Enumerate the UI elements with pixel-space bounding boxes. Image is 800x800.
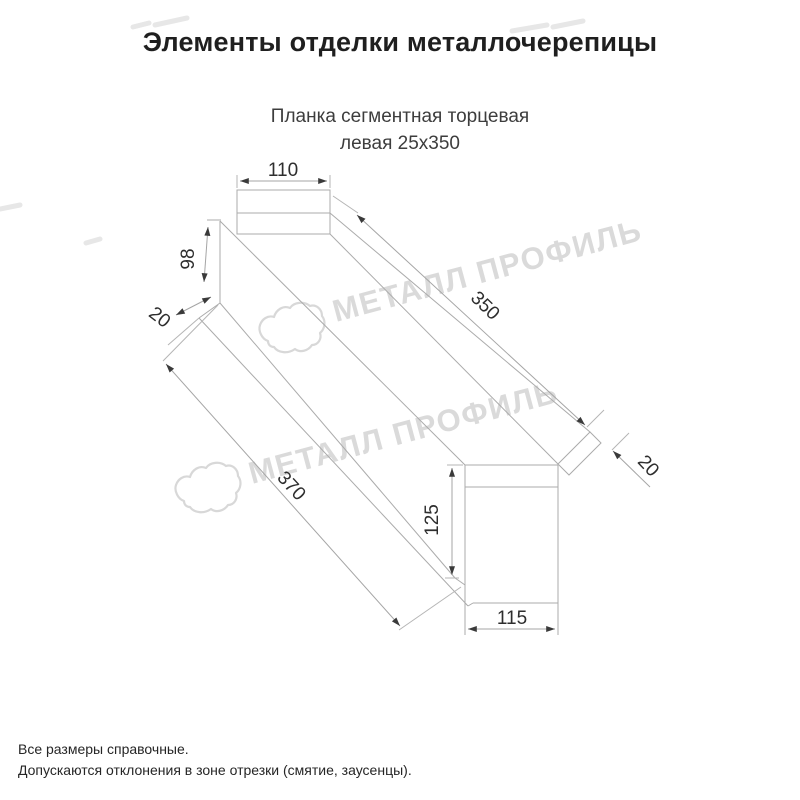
front-top-edge xyxy=(220,221,465,465)
end-flange xyxy=(558,432,601,475)
dim-label-350: 350 xyxy=(466,287,503,324)
watermark-lower: МЕТАЛЛ ПРОФИЛЬ xyxy=(175,374,561,512)
left-end-tab xyxy=(237,190,330,234)
watermark-upper: МЕТАЛЛ ПРОФИЛЬ xyxy=(259,212,645,352)
dim-label-20-left: 20 xyxy=(145,303,175,333)
dim-label-115: 115 xyxy=(497,608,527,629)
metal-profil-logo-icon xyxy=(175,463,240,512)
dim-label-20-right: 20 xyxy=(633,451,663,481)
dimension-left-fold: 20 xyxy=(145,297,218,361)
dimension-end-height: 125 xyxy=(422,465,463,578)
dimension-right-fold: 20 xyxy=(612,433,663,487)
dimension-end-width: 115 xyxy=(468,608,555,629)
footer-note1: Все размеры справочные. xyxy=(18,739,778,760)
footer-note2: Допускаются отклонения в зоне отрезки (с… xyxy=(18,760,778,781)
dim-label-125: 125 xyxy=(422,504,443,536)
fold-edge xyxy=(199,318,468,606)
dimension-bottom-length: 370 xyxy=(166,364,461,630)
dim-label-98: 98 xyxy=(178,248,199,269)
catalog-page: Элементы отделки металлочерепицы Планка … xyxy=(0,0,800,800)
dimension-top-width: 110 xyxy=(237,160,330,188)
watermark-fragments xyxy=(0,18,583,243)
technical-drawing: МЕТАЛЛ ПРОФИЛЬ МЕТАЛЛ ПРОФИЛЬ xyxy=(0,0,800,800)
footer-notes: Все размеры справочные. Допускаются откл… xyxy=(18,739,778,781)
metal-profil-logo-icon xyxy=(259,303,324,352)
dimension-left-height: 98 xyxy=(178,227,208,282)
dim-label-110: 110 xyxy=(268,160,298,181)
